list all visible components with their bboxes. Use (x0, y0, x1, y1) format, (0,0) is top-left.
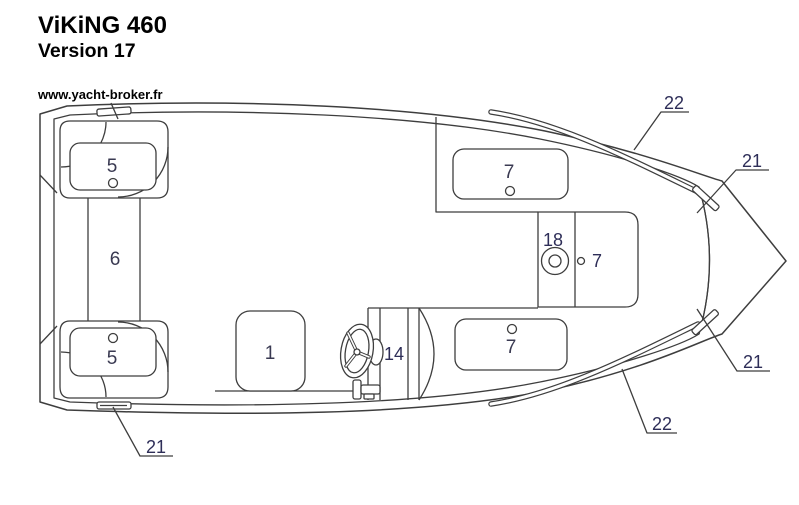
wheel-hub (354, 349, 360, 355)
seat-5-top-label: 5 (107, 156, 118, 177)
callout-22-top-label: 22 (664, 93, 684, 113)
seat-7-top-drain (506, 187, 515, 196)
seat-1-label: 1 (265, 343, 276, 364)
seat-5-bottom-drain (109, 334, 118, 343)
callout-21-bottom-left-label: 21 (146, 437, 166, 457)
seat-5-bottom-label: 5 (107, 348, 118, 369)
seat-7-bottom-label: 7 (506, 337, 517, 358)
callout-21-top-right-label: 21 (742, 151, 762, 171)
website-url: www.yacht-broker.fr (37, 87, 163, 102)
boat-plan-page: ViKiNG 460 Version 17 www.yacht-broker.f… (0, 0, 799, 505)
seat-7-mid-label: 7 (592, 251, 602, 271)
seat-7-top-label: 7 (504, 162, 515, 183)
page-title: ViKiNG 460 (38, 12, 167, 39)
passage-6-label: 6 (110, 249, 121, 270)
steering-14-label: 14 (384, 344, 404, 364)
deck-plan-drawing: ViKiNG 460 Version 17 www.yacht-broker.f… (0, 0, 799, 505)
seat-7-mid-drain (578, 258, 585, 265)
callout-21-bottom-right-label: 21 (743, 352, 763, 372)
callout-22-bottom-label: 22 (652, 414, 672, 434)
seat-7-bottom-drain (508, 325, 517, 334)
callout-22-top-leader (634, 112, 689, 150)
seat-5-top-drain (109, 179, 118, 188)
page-subtitle: Version 17 (38, 40, 136, 62)
fitting-18-inner-ring (549, 255, 561, 267)
